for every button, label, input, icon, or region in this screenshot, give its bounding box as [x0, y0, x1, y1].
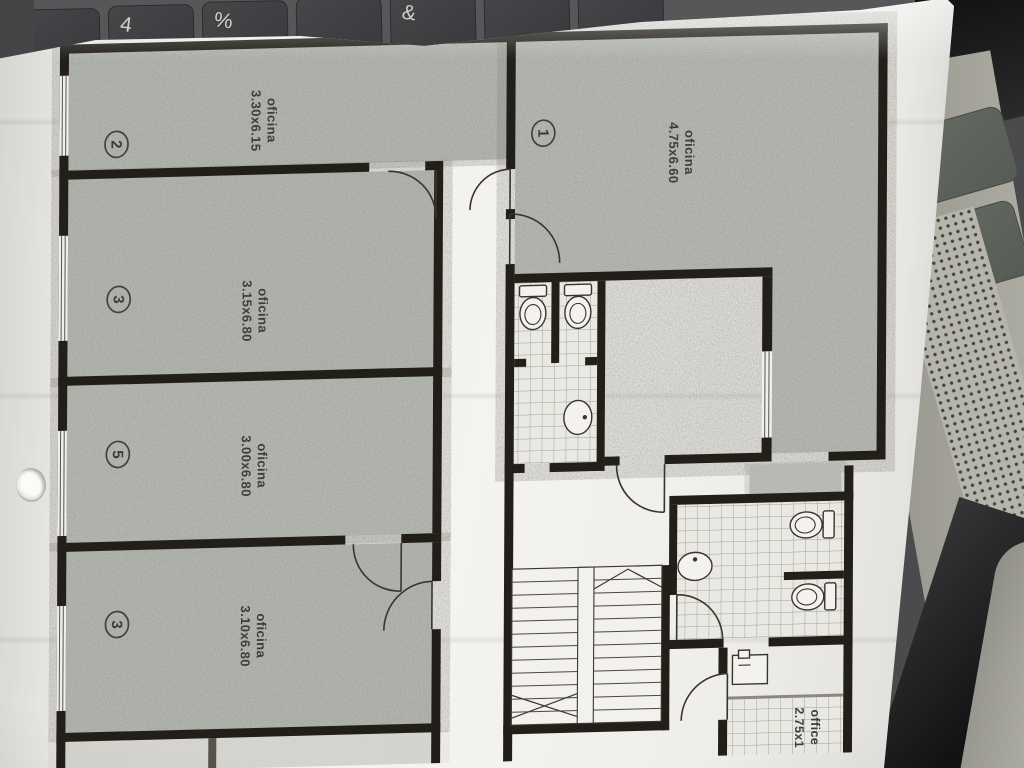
room-3b-label: oficina 3.10x6.80 — [238, 605, 269, 667]
floor-plan-drawing: oficina 3.30x6.15 2 oficina 3.15x6.80 3 … — [48, 9, 902, 768]
svg-text:oficina: oficina — [254, 613, 269, 658]
svg-text:3.00x6.80: 3.00x6.80 — [239, 435, 254, 497]
doors — [352, 162, 730, 729]
walls — [56, 23, 888, 768]
door-arc — [681, 674, 727, 721]
window — [57, 606, 67, 711]
svg-text:2: 2 — [107, 140, 124, 149]
door-arc — [470, 169, 510, 210]
door-arc — [353, 543, 401, 592]
room-5-number: 5 — [106, 441, 129, 468]
office-room-floor — [727, 697, 843, 756]
toilet-icon — [792, 583, 836, 611]
fixtures — [517, 278, 837, 691]
window — [58, 236, 68, 341]
sink-icon — [564, 400, 592, 435]
room-3-label: oficina 3.15x6.80 — [239, 280, 270, 342]
window — [59, 76, 68, 156]
windows — [57, 57, 774, 711]
door-arc — [384, 581, 432, 630]
door-arc — [388, 170, 436, 219]
svg-text:oficina: oficina — [255, 443, 270, 488]
window — [762, 351, 772, 437]
bathroom2-floor — [677, 500, 845, 639]
room-3-number: 3 — [107, 286, 130, 313]
svg-text:oficina: oficina — [682, 130, 697, 175]
room-2-label: oficina 3.30x6.15 — [248, 89, 279, 151]
door-arc — [677, 594, 723, 640]
bathroom-floor — [514, 281, 598, 464]
utility-box-icon — [732, 650, 767, 685]
svg-text:1: 1 — [534, 129, 551, 138]
window — [57, 431, 67, 536]
paper-crease — [0, 118, 1024, 126]
toilet-icon — [790, 511, 834, 539]
svg-text:3.10x6.80: 3.10x6.80 — [238, 605, 253, 667]
key-legend: & — [400, 1, 417, 27]
door-arc — [616, 464, 664, 513]
floor-plan-svg: oficina 3.30x6.15 2 oficina 3.15x6.80 3 … — [48, 9, 902, 768]
svg-text:3: 3 — [110, 295, 127, 304]
room-labels: oficina 3.30x6.15 2 oficina 3.15x6.80 3 … — [102, 75, 826, 766]
svg-text:2.75x1: 2.75x1 — [792, 707, 806, 748]
svg-text:3.15x6.80: 3.15x6.80 — [239, 280, 254, 342]
svg-text:office: office — [808, 709, 822, 745]
stair-stringer — [577, 567, 594, 723]
photo-of-floor-plan: 4 % & W S — [0, 0, 1024, 768]
paper-crease — [0, 636, 1024, 644]
sink-icon — [678, 552, 712, 581]
room-name: oficina — [264, 98, 279, 143]
toilet-icon — [519, 285, 546, 330]
key-legend: % — [212, 8, 234, 34]
svg-text:5: 5 — [109, 450, 126, 459]
tiled-floors — [512, 274, 845, 761]
room-1-number: 1 — [532, 120, 555, 147]
door-arc — [510, 213, 560, 264]
paper-punch-hole — [16, 468, 46, 502]
room-1-label: oficina 4.75x6.60 — [666, 121, 697, 183]
office-floor-textures — [65, 32, 878, 768]
office-label: office 2.75x1 — [792, 707, 822, 748]
svg-text:4.75x6.60: 4.75x6.60 — [666, 122, 681, 184]
key-legend: 4 — [119, 13, 134, 38]
svg-text:3: 3 — [108, 620, 125, 629]
paper-sheet: oficina 3.30x6.15 2 oficina 3.15x6.80 3 … — [0, 0, 1024, 768]
staircase — [511, 565, 662, 725]
toilet-icon — [564, 284, 591, 329]
room-5-label: oficina 3.00x6.80 — [239, 435, 270, 497]
svg-text:oficina: oficina — [255, 288, 270, 333]
room-2-number: 2 — [105, 131, 128, 158]
paper-crease — [0, 392, 1024, 400]
room-dims: 3.30x6.15 — [248, 90, 263, 152]
room-3b-number: 3 — [105, 611, 128, 638]
